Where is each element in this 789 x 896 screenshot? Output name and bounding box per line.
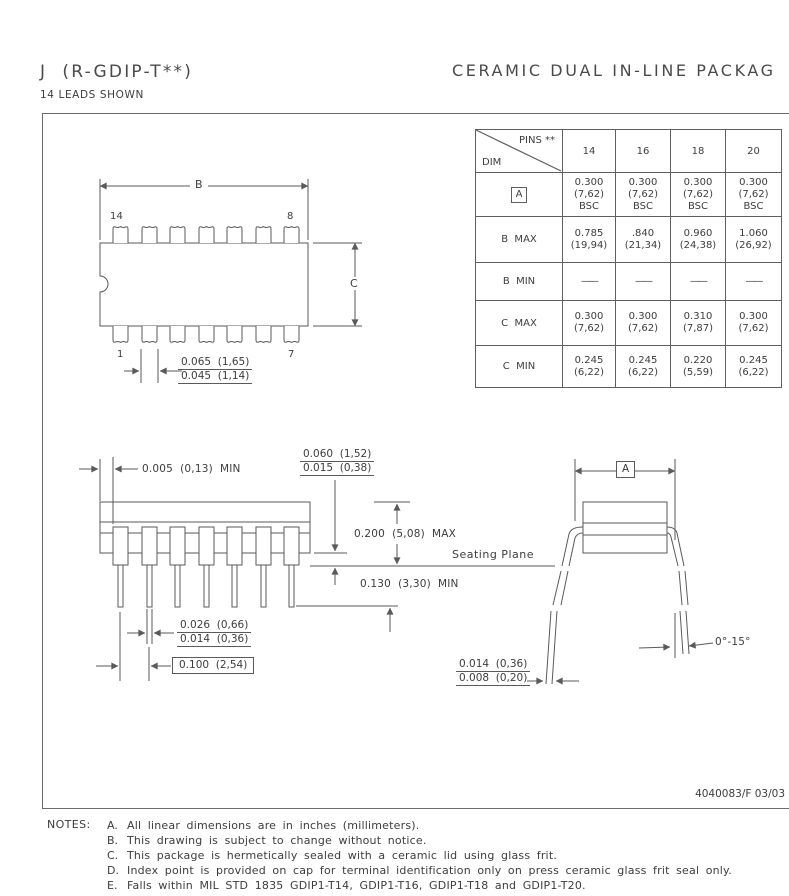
table-cell: .840 (21,34)	[616, 217, 671, 263]
dim-b-label: B	[190, 178, 208, 191]
note-text: Falls within MIL STD 1835 GDIP1-T14, GDI…	[127, 878, 586, 893]
dim-lead-thickness-lines	[127, 609, 174, 644]
note-letter: C.	[107, 848, 127, 863]
datasheet-page: J (R-GDIP-T**) 14 LEADS SHOWN CERAMIC DU…	[0, 0, 789, 896]
table-cell: 0.220 (5,59)	[671, 346, 726, 388]
lead-width-fraction: 0.065 (1,65) 0.045 (1,14)	[178, 356, 252, 384]
document-number: 4040083/F 03/03	[620, 788, 785, 800]
notes-list: A. All linear dimensions are in inches (…	[107, 818, 732, 893]
end-view-right-leg	[667, 527, 689, 654]
seating-plane-label: Seating Plane	[452, 548, 534, 561]
table-cell: 0.245 (6,22)	[563, 346, 616, 388]
lead-width-max: 0.065 (1,65)	[178, 356, 252, 370]
note-letter: E.	[107, 878, 127, 893]
table-dim-header: DIM	[482, 157, 501, 168]
note-item: E. Falls within MIL STD 1835 GDIP1-T14, …	[107, 878, 732, 893]
lead-thickness-fraction: 0.026 (0,66) 0.014 (0,36)	[177, 619, 251, 647]
table-cell: 0.300 (7,62) BSC	[616, 173, 671, 217]
table-cell: 0.300 (7,62)	[616, 301, 671, 346]
table-cell: 0.245 (6,22)	[726, 346, 782, 388]
row-label-b-min: B MIN	[476, 263, 563, 301]
table-cell: 1.060 (26,92)	[726, 217, 782, 263]
pin-number-1: 1	[117, 349, 124, 360]
body-height-label: 0.200 (5,08) MAX	[352, 528, 458, 540]
table-cell: 0.785 (19,94)	[563, 217, 616, 263]
dim-a-label: A	[616, 461, 635, 478]
shoulder-max: 0.060 (1,52)	[300, 448, 374, 462]
note-text: This package is hermetically sealed with…	[127, 848, 557, 863]
table-cell: ——	[671, 263, 726, 301]
note-text: All linear dimensions are in inches (mil…	[127, 818, 419, 833]
table-cell: 0.300 (7,62) BSC	[671, 173, 726, 217]
side-view-lead-pins	[118, 565, 294, 607]
note-text: Index point is provided on cap for termi…	[127, 863, 732, 878]
pin-number-8: 8	[287, 211, 294, 222]
dim-c-label: C	[345, 277, 363, 290]
table-corner-cell: PINS ** DIM	[476, 130, 563, 173]
shoulder-fraction: 0.060 (1,52) 0.015 (0,38)	[300, 448, 374, 476]
standoff-label: 0.130 (3,30) MIN	[360, 578, 459, 590]
end-view-left-leg	[546, 527, 583, 684]
col-header-20: 20	[726, 130, 782, 173]
row-label-c-max: C MAX	[476, 301, 563, 346]
row-label-b-max: B MAX	[476, 217, 563, 263]
table-cell: 0.300 (7,62)	[563, 301, 616, 346]
table-cell: 0.245 (6,22)	[616, 346, 671, 388]
lead-angle-label: 0°-15°	[715, 636, 751, 648]
notes-label: NOTES:	[47, 818, 91, 831]
dimension-table: PINS ** DIM 14 16 18 20 A 0.300 (7,62) B…	[475, 129, 782, 388]
note-letter: D.	[107, 863, 127, 878]
row-label-c-min: C MIN	[476, 346, 563, 388]
table-cell: 0.300 (7,62) BSC	[726, 173, 782, 217]
table-cell: 0.960 (24,38)	[671, 217, 726, 263]
dim-lead-width-lines	[124, 349, 182, 383]
side-view-drawing	[79, 457, 555, 681]
table-cell: ——	[726, 263, 782, 301]
package-body-end-view	[583, 502, 667, 553]
note-item: D. Index point is provided on cap for te…	[107, 863, 732, 878]
table-cell: ——	[616, 263, 671, 301]
note-item: B. This drawing is subject to change wit…	[107, 833, 732, 848]
note-letter: A.	[107, 818, 127, 833]
col-header-14: 14	[563, 130, 616, 173]
row-label-a: A	[476, 173, 563, 217]
edge-clearance-label: 0.005 (0,13) MIN	[142, 463, 241, 475]
end-view-drawing	[527, 459, 713, 684]
table-cell: ——	[563, 263, 616, 301]
pitch-label: 0.100 (2,54)	[172, 657, 254, 674]
lead-thickness-min: 0.014 (0,36)	[177, 633, 251, 647]
note-letter: B.	[107, 833, 127, 848]
note-item: A. All linear dimensions are in inches (…	[107, 818, 732, 833]
top-view-drawing	[100, 179, 362, 383]
table-cell: 0.300 (7,62) BSC	[563, 173, 616, 217]
dim-edge-clearance-lines	[79, 457, 138, 524]
note-item: C. This package is hermetically sealed w…	[107, 848, 732, 863]
lead-width-min: 0.045 (1,14)	[178, 370, 252, 384]
top-view-pins	[113, 227, 299, 343]
leg-thickness-max: 0.014 (0,36)	[456, 658, 530, 672]
table-cell: 0.300 (7,62)	[726, 301, 782, 346]
lead-thickness-max: 0.026 (0,66)	[177, 619, 251, 633]
shoulder-min: 0.015 (0,38)	[300, 462, 374, 476]
col-header-16: 16	[616, 130, 671, 173]
dim-pitch-lines	[96, 612, 171, 681]
table-pins-header: PINS **	[519, 135, 555, 146]
pin-number-14: 14	[110, 211, 123, 222]
col-header-18: 18	[671, 130, 726, 173]
pin-number-7: 7	[288, 349, 295, 360]
dim-angle-lines	[639, 613, 713, 658]
note-text: This drawing is subject to change withou…	[127, 833, 427, 848]
leg-thickness-min: 0.008 (0,20)	[456, 672, 530, 686]
package-body-top-view	[100, 243, 308, 326]
leg-thickness-fraction: 0.014 (0,36) 0.008 (0,20)	[456, 658, 530, 686]
table-cell: 0.310 (7,87)	[671, 301, 726, 346]
